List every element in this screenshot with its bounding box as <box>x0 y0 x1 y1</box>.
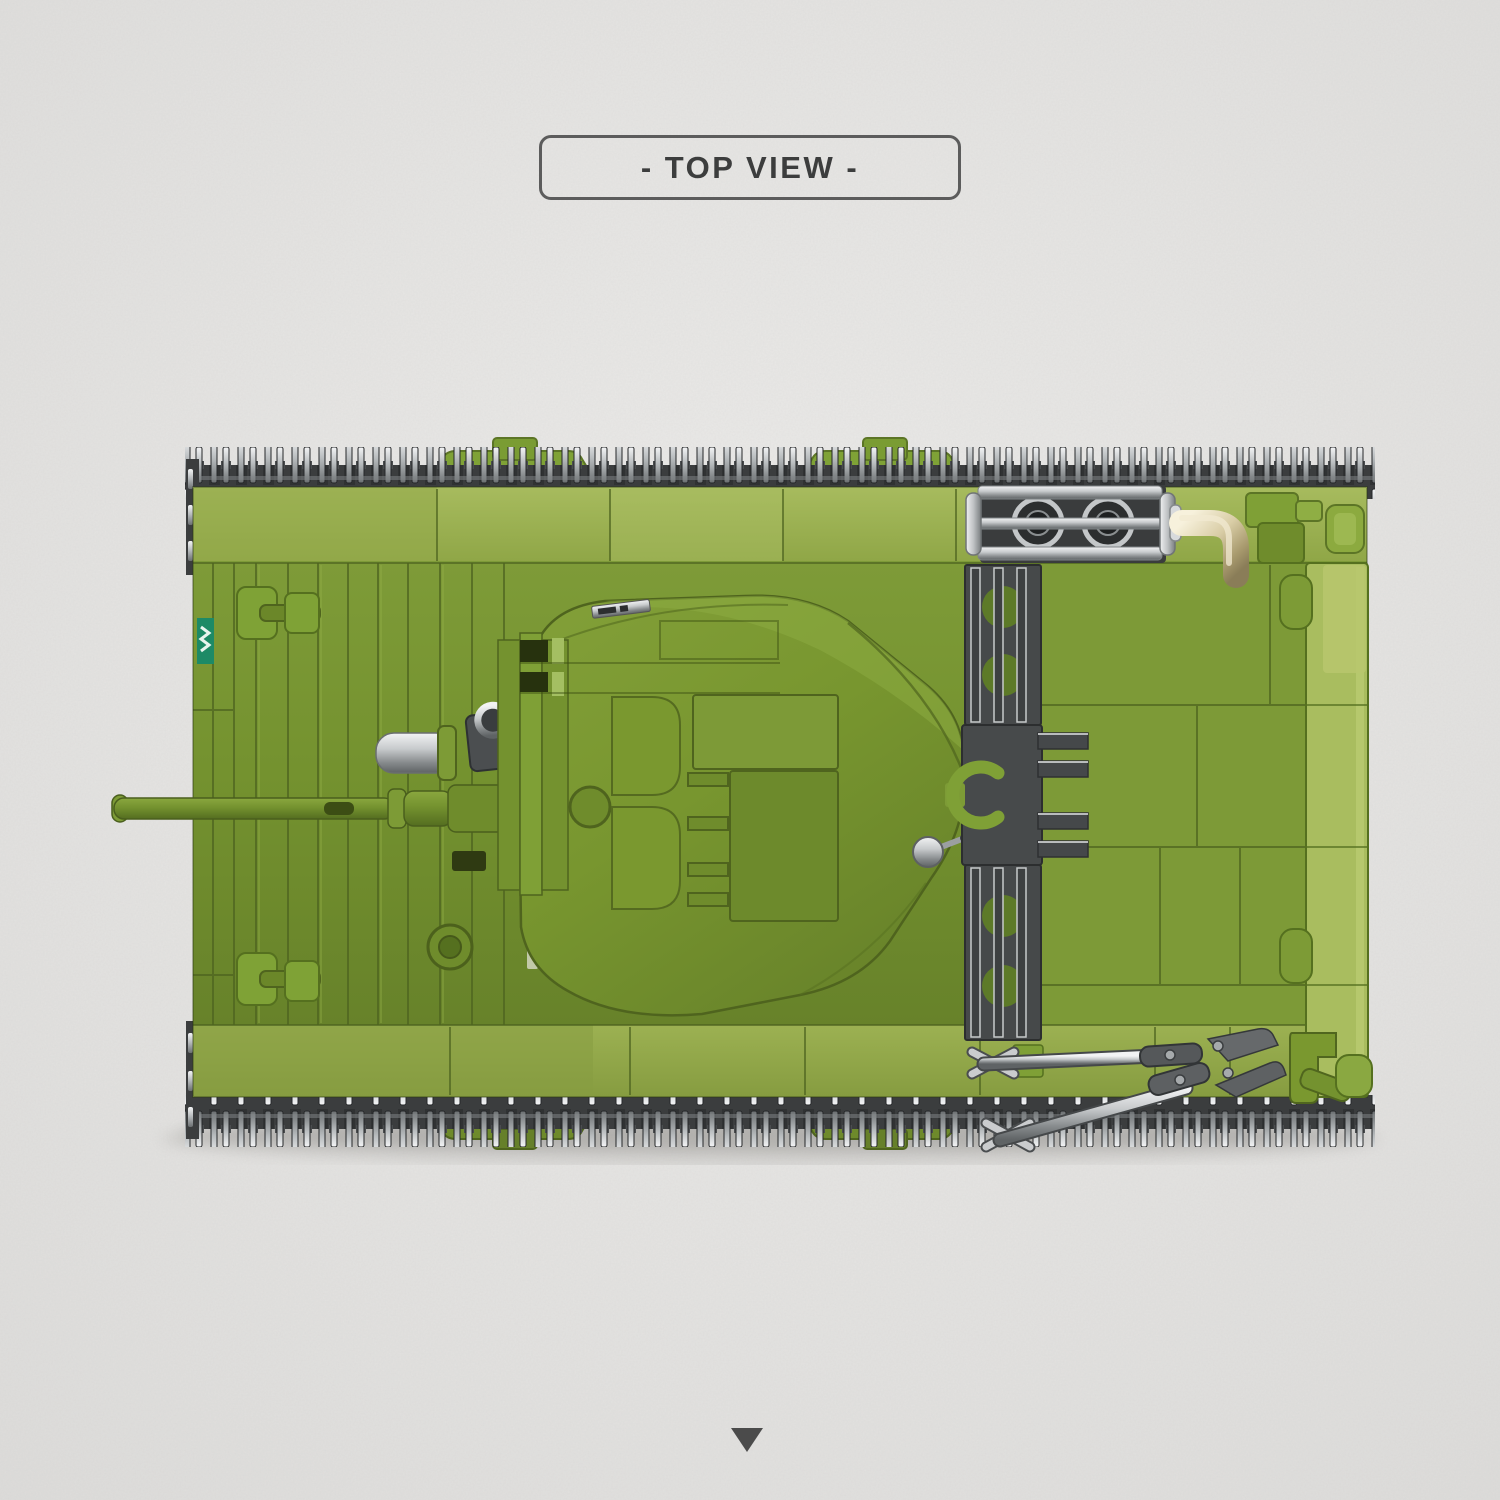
hull-side-sticker <box>197 618 214 664</box>
turret-hatch-upper-plate <box>693 695 838 769</box>
skirt-hinge-pin <box>1280 929 1312 983</box>
muffler <box>966 485 1175 563</box>
hull-vent-slot <box>452 851 486 871</box>
top-view-label-box: - TOP VIEW - <box>539 135 961 200</box>
top-view-label: - TOP VIEW - <box>641 150 859 186</box>
periscope-dome <box>570 787 610 827</box>
down-triangle-icon <box>731 1428 763 1452</box>
mantlet-plates <box>498 633 568 895</box>
product-image-stage: - TOP VIEW - <box>0 0 1500 1500</box>
tank-top-view-illustration <box>100 435 1390 1165</box>
hatch-ring <box>428 925 472 969</box>
turret-hatch-main-plate <box>730 771 838 921</box>
engine-deck <box>1040 563 1306 1025</box>
skirt-hinge-pin <box>1280 575 1312 629</box>
